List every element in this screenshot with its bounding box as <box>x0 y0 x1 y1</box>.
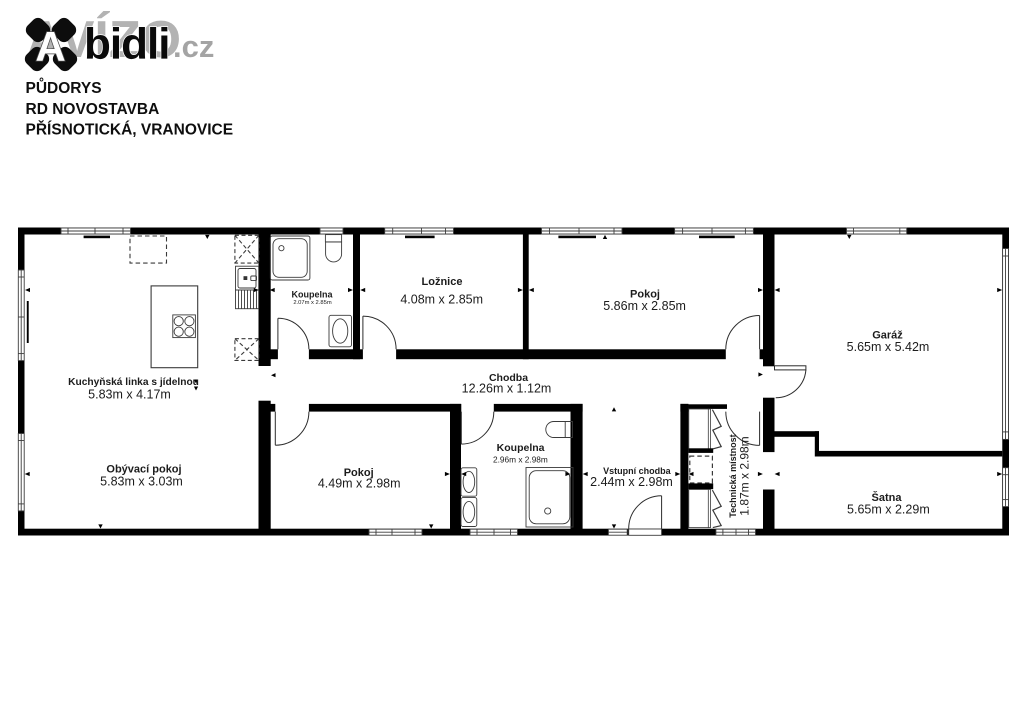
svg-text:5.86m x 2.85m: 5.86m x 2.85m <box>603 299 686 313</box>
svg-text:Kuchyňská linka s jídelnou: Kuchyňská linka s jídelnou <box>68 377 199 388</box>
svg-text:.cz: .cz <box>173 29 214 64</box>
svg-text:Technická místnost: Technická místnost <box>728 434 738 517</box>
svg-text:PŮDORYS: PŮDORYS <box>26 78 102 97</box>
svg-text:5.65m x 2.29m: 5.65m x 2.29m <box>847 503 930 517</box>
svg-text:2.44m x 2.98m: 2.44m x 2.98m <box>590 475 673 489</box>
svg-text:PŘÍSNOTICKÁ, VRANOVICE: PŘÍSNOTICKÁ, VRANOVICE <box>26 121 234 139</box>
svg-text:5.65m x 5.42m: 5.65m x 5.42m <box>847 340 930 354</box>
svg-text:1.87m x 2.98m: 1.87m x 2.98m <box>738 436 752 515</box>
svg-text:bidli: bidli <box>84 20 169 69</box>
svg-text:12.26m x 1.12m: 12.26m x 1.12m <box>462 382 552 396</box>
svg-text:5.83m x 3.03m: 5.83m x 3.03m <box>100 475 183 489</box>
svg-text:Koupelna: Koupelna <box>497 442 545 454</box>
svg-text:5.83m x 4.17m: 5.83m x 4.17m <box>88 388 171 402</box>
svg-text:RD NOVOSTAVBA: RD NOVOSTAVBA <box>26 101 160 118</box>
svg-text:2.96m x 2.98m: 2.96m x 2.98m <box>493 455 548 465</box>
svg-text:4.08m x 2.85m: 4.08m x 2.85m <box>400 293 483 307</box>
svg-text:4.49m x 2.98m: 4.49m x 2.98m <box>318 477 401 491</box>
svg-text:Koupelna: Koupelna <box>291 290 333 300</box>
svg-text:A: A <box>35 23 65 70</box>
svg-text:2.07m x 2.85m: 2.07m x 2.85m <box>293 300 332 306</box>
svg-text:Ložnice: Ložnice <box>422 276 463 288</box>
